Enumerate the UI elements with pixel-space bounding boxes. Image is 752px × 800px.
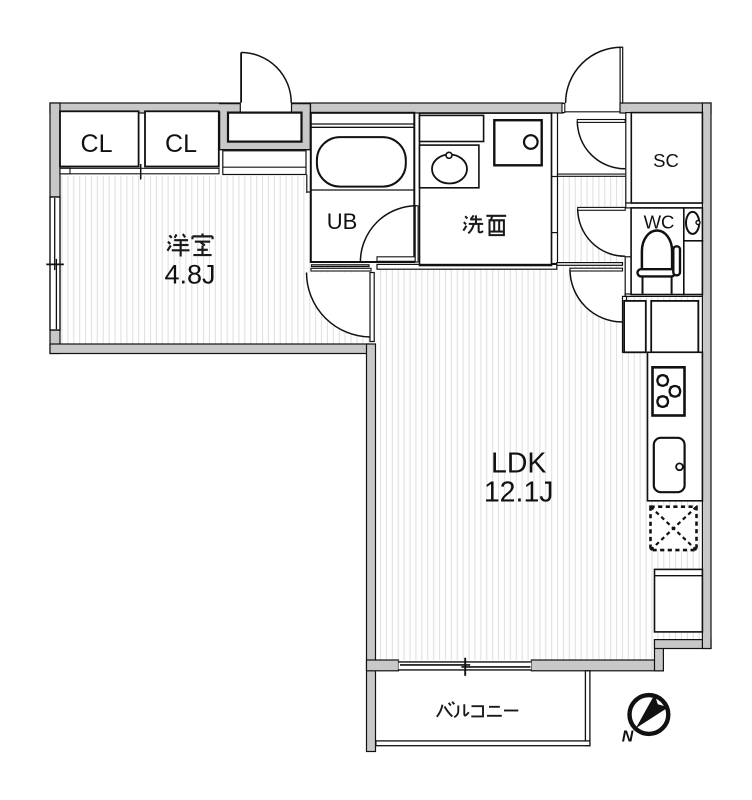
svg-text:4.8J: 4.8J xyxy=(164,260,215,290)
svg-text:N: N xyxy=(622,729,634,746)
svg-text:LDK: LDK xyxy=(491,448,546,480)
svg-text:SC: SC xyxy=(653,150,679,171)
svg-text:CL: CL xyxy=(165,130,197,158)
svg-text:UB: UB xyxy=(327,209,358,234)
svg-text:12.1J: 12.1J xyxy=(484,476,554,508)
svg-text:WC: WC xyxy=(644,211,675,232)
svg-text:CL: CL xyxy=(81,130,113,158)
